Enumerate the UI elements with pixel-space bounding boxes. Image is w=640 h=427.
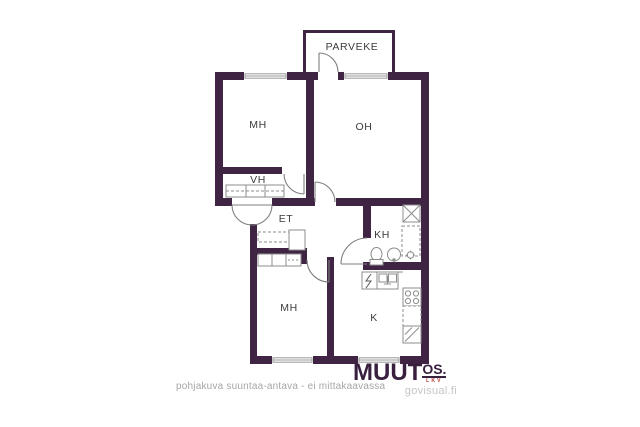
room-label-oh: OH bbox=[356, 121, 373, 133]
logo-text: MUUT bbox=[353, 361, 422, 385]
counter-icon bbox=[403, 306, 421, 326]
balcony-wall bbox=[303, 30, 395, 33]
room-label-mh-bottom: MH bbox=[280, 302, 298, 314]
door-arc bbox=[284, 174, 304, 194]
room-label-mh-top: MH bbox=[249, 119, 267, 131]
wardrobe-icon bbox=[226, 185, 284, 197]
stove-icon bbox=[403, 288, 421, 306]
kitchen-sink-icon bbox=[377, 272, 403, 289]
wall-segment bbox=[215, 198, 232, 206]
balcony-wall bbox=[392, 30, 395, 72]
window-symbol bbox=[345, 74, 387, 78]
wall-segment bbox=[421, 72, 429, 364]
electrical-cabinet-icon bbox=[362, 272, 377, 289]
muutos-logo: MUUT OS. LKV bbox=[353, 361, 446, 385]
room-label-vh: VH bbox=[250, 174, 266, 186]
wall-segment bbox=[215, 167, 282, 174]
wardrobe-icon bbox=[258, 254, 301, 266]
door-arc bbox=[315, 182, 335, 202]
wall-segment bbox=[250, 224, 257, 364]
window-symbol bbox=[273, 358, 312, 362]
floor-plan: PARVEKE MH OH VH ET KH MH K bbox=[0, 0, 640, 427]
logo-tagline: LKV bbox=[422, 379, 446, 384]
wall-segment bbox=[363, 206, 371, 238]
wall-segment bbox=[313, 356, 358, 364]
cabinet-icon bbox=[258, 230, 305, 250]
website-text: govisual.fi bbox=[350, 385, 457, 397]
room-label-k: K bbox=[370, 312, 378, 324]
door-arc bbox=[319, 53, 338, 72]
room-label-et: ET bbox=[279, 213, 294, 225]
balcony-wall bbox=[303, 30, 306, 72]
sink-icon bbox=[388, 248, 401, 261]
wall-segment bbox=[338, 72, 344, 80]
wall-segment bbox=[306, 80, 314, 206]
wall-segment bbox=[287, 72, 318, 80]
wall-segment bbox=[215, 72, 223, 206]
room-label-parveke: PARVEKE bbox=[326, 41, 379, 53]
door-arc bbox=[341, 238, 367, 264]
toilet-icon bbox=[370, 248, 383, 266]
washing-machine-icon bbox=[403, 205, 420, 222]
door-arc bbox=[307, 260, 329, 282]
wall-segment bbox=[327, 257, 334, 364]
entry-door-arc bbox=[232, 205, 272, 225]
floor-plan-page: PARVEKE MH OH VH ET KH MH K pohjakuva su… bbox=[0, 0, 640, 427]
room-label-kh: KH bbox=[374, 229, 390, 241]
window-symbol bbox=[245, 74, 286, 78]
refrigerator-icon bbox=[403, 326, 421, 343]
logo-suffix: OS. bbox=[422, 362, 446, 378]
logo-suffix-block: OS. LKV bbox=[422, 362, 446, 384]
